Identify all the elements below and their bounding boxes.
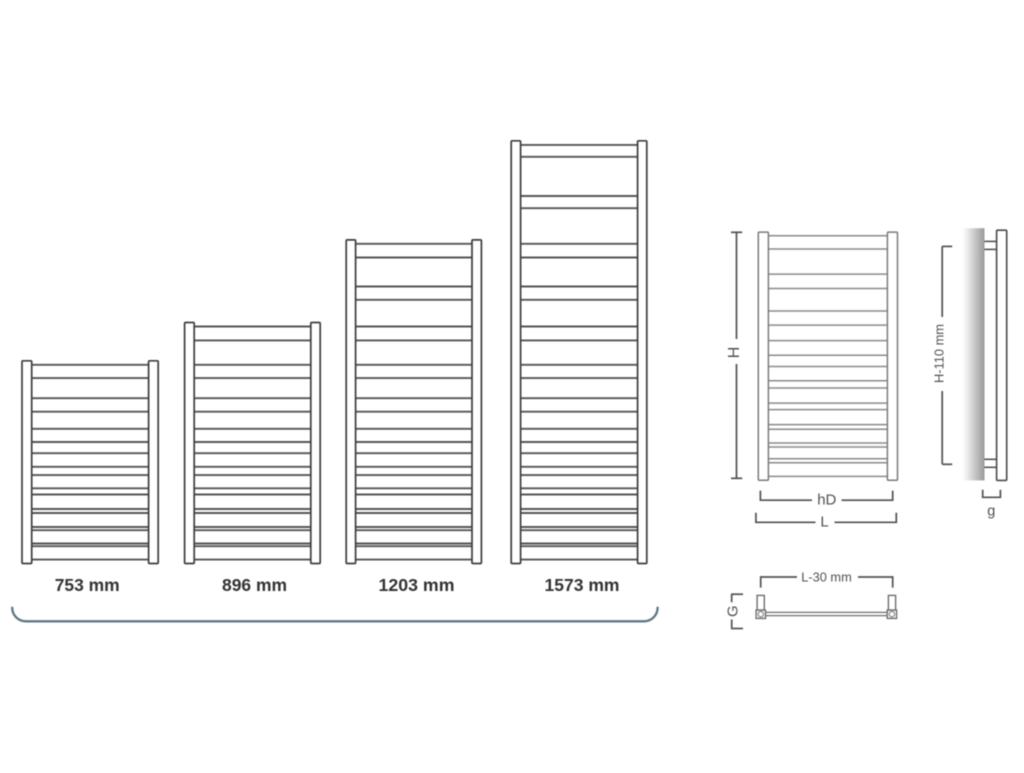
svg-text:hD: hD (817, 491, 836, 508)
svg-text:1203 mm: 1203 mm (379, 575, 455, 595)
svg-text:g: g (987, 504, 995, 520)
svg-text:1573 mm: 1573 mm (545, 575, 620, 595)
svg-text:L: L (820, 514, 828, 531)
svg-text:H: H (726, 347, 743, 359)
svg-text:H-110 mm: H-110 mm (932, 324, 947, 383)
svg-text:G: G (725, 605, 742, 617)
svg-text:L-30 mm: L-30 mm (801, 570, 852, 585)
svg-text:896 mm: 896 mm (222, 575, 287, 595)
svg-text:753 mm: 753 mm (55, 575, 120, 595)
